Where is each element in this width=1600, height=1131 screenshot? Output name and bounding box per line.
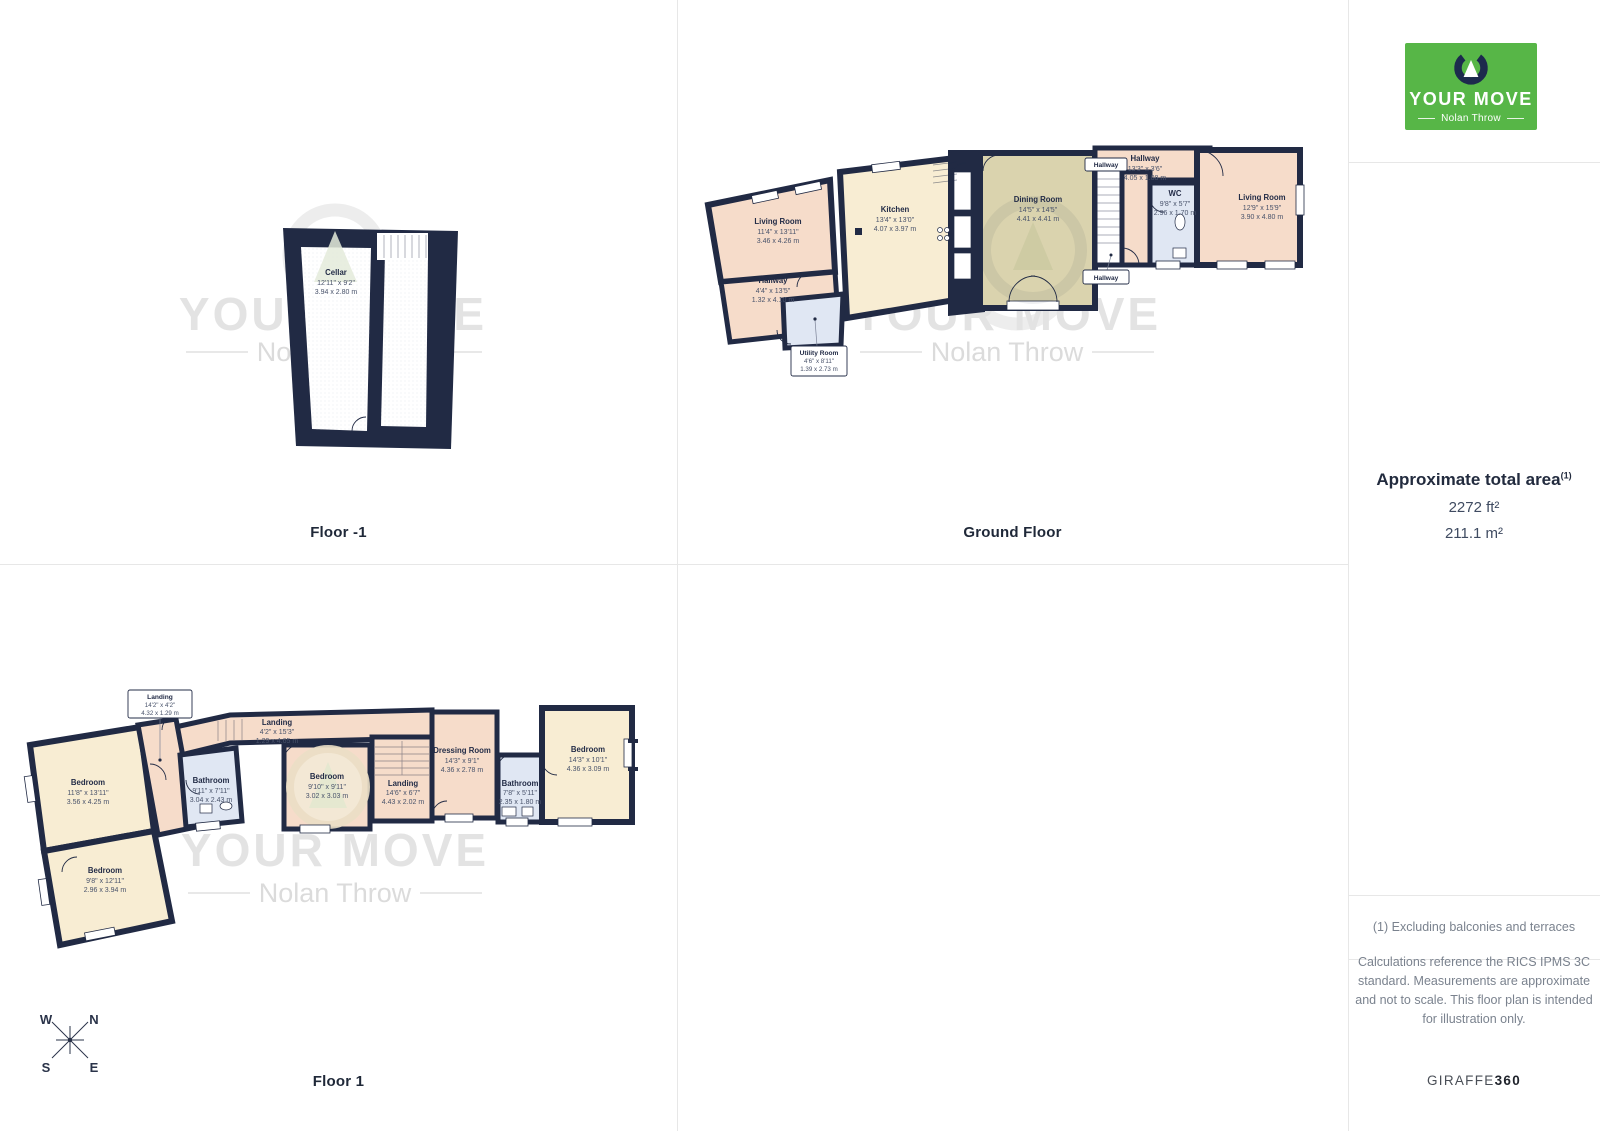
label-ft: 14'5" x 14'5" — [1019, 207, 1058, 214]
kitchen-unit — [954, 253, 971, 279]
room-label-living-left: Living Room 11'4" x 13'11" 3.46 x 4.26 m — [754, 217, 801, 245]
cellar-stairs — [377, 233, 428, 260]
compass-w: W — [40, 1012, 53, 1027]
floor-label-minus1: Floor -1 — [0, 524, 677, 541]
window — [1217, 261, 1247, 269]
wall-wing — [628, 767, 638, 771]
label-m: 2.96 x 1.70 m — [1154, 210, 1197, 217]
floorplan-floor-1: YOUR MOVE Nolan Throw — [0, 564, 677, 1131]
room-label-dining: Dining Room 14'5" x 14'5" 4.41 x 4.41 m — [1014, 195, 1063, 223]
logo-dash — [1507, 118, 1524, 119]
label-name: Landing — [388, 779, 419, 788]
label-m: 4.43 x 2.02 m — [382, 799, 425, 806]
sidebar-divider — [1348, 162, 1600, 163]
label-ft: 9'10" x 9'11" — [308, 784, 346, 791]
total-area-block: Approximate total area(1) 2272 ft² 211.1… — [1348, 470, 1600, 542]
room-label-living-right: Living Room 12'9" x 15'9" 3.90 x 4.80 m — [1238, 193, 1285, 221]
area-title: Approximate total area(1) — [1348, 470, 1600, 490]
area-sqft: 2272 ft² — [1348, 499, 1600, 516]
room-bedroom-right — [542, 708, 632, 822]
label-ft: 7'8" x 5'11" — [503, 790, 537, 797]
label-name: Bedroom — [571, 745, 605, 754]
room-label-landing-middle: Landing 14'6" x 6'7" 4.43 x 2.02 m — [382, 779, 425, 806]
window — [1296, 185, 1304, 215]
giraffe360-logo: GIRAFFE360 — [1348, 1073, 1600, 1088]
label-name: Hallway — [758, 276, 788, 285]
label-ft: 11'8" x 13'11" — [67, 790, 109, 797]
toilet — [200, 804, 212, 813]
area-footnote-marker: (1) — [1561, 470, 1572, 480]
label-ft: 12'9" x 15'9" — [1243, 205, 1282, 212]
label-ft: 14'3" x 9'1" — [445, 758, 480, 765]
label-ft: 11'4" x 13'11" — [757, 229, 799, 236]
cellar-plan — [283, 228, 458, 449]
window — [1156, 261, 1180, 269]
label-ft: 9'11" x 7'11" — [192, 788, 230, 795]
watermark-agency: Nolan Throw — [931, 337, 1084, 367]
label-m: 2.35 x 1.80 m — [499, 799, 542, 806]
label-m: 3.46 x 4.26 m — [757, 238, 800, 245]
label-name: Landing — [147, 694, 173, 701]
label-name: Dressing Room — [433, 746, 491, 755]
label-ft: 14'6" x 6'7" — [386, 790, 421, 797]
label-m: 3.56 x 4.25 m — [67, 799, 110, 806]
label-name: Living Room — [1238, 193, 1285, 202]
giraffe-360: 360 — [1495, 1073, 1521, 1088]
wc-cistern — [1173, 248, 1186, 258]
label-ft: 13'3" x 3'6" — [1128, 166, 1163, 173]
room-label-bedroom-bottom-left: Bedroom 9'8" x 12'11" 2.96 x 3.94 m — [84, 866, 127, 894]
label-name: Hallway — [1130, 154, 1160, 163]
floor-label-ground: Ground Floor — [677, 524, 1348, 541]
label-ft: 9'8" x 5'7" — [1160, 201, 1191, 208]
room-label-bedroom-middle: Bedroom 9'10" x 9'11" 3.02 x 3.03 m — [306, 772, 349, 800]
room-label-bedroom-top-left: Bedroom 11'8" x 13'11" 3.56 x 4.25 m — [67, 778, 110, 806]
label-ft: 4'2" x 15'3" — [260, 729, 295, 736]
label-ft: 4'4" x 13'5" — [756, 288, 791, 295]
sidebar-divider — [1348, 895, 1600, 896]
label-m: 2.96 x 3.94 m — [84, 887, 127, 894]
label-name: Bedroom — [71, 778, 105, 787]
label-name: WC — [1169, 189, 1182, 198]
room-label-bathroom-right: Bathroom 7'8" x 5'11" 2.35 x 1.80 m — [499, 779, 542, 806]
label-name: Hallway — [1094, 275, 1119, 282]
label-m: 4.32 x 1.29 m — [141, 710, 179, 717]
label-m: 4.36 x 3.09 m — [567, 766, 610, 773]
compass-n: N — [89, 1012, 98, 1027]
label-m: 4.07 x 3.97 m — [874, 226, 917, 233]
yourmove-logo-icon — [1448, 50, 1494, 88]
logo-dash — [1418, 118, 1435, 119]
area-sqm: 211.1 m² — [1348, 525, 1600, 542]
floor1-plan — [24, 708, 638, 945]
window — [300, 825, 330, 833]
label-m: 1.39 x 2.73 m — [800, 366, 838, 373]
watermark-brand: YOUR MOVE — [181, 824, 489, 876]
toilet — [522, 807, 533, 816]
label-ft: 14'2" x 4'2" — [145, 702, 176, 709]
agency-logo: YOUR MOVE Nolan Throw — [1405, 43, 1537, 130]
label-m: 4.41 x 4.41 m — [1017, 216, 1060, 223]
cellar-dims-m: 3.94 x 2.80 m — [315, 289, 358, 296]
basin — [502, 807, 516, 816]
hallway-box-label: Hallway — [1085, 158, 1127, 171]
window — [445, 814, 473, 822]
kitchen-unit — [954, 172, 971, 210]
window — [624, 739, 632, 767]
label-name: Living Room — [754, 217, 801, 226]
kitchen-unit — [954, 216, 971, 248]
room-label-landing-top: Landing 4'2" x 15'3" 1.29 x 4.65 m — [256, 718, 299, 745]
label-m: 1.32 x 4.10 m — [752, 297, 795, 304]
window — [506, 818, 528, 826]
disclaimer-text: Calculations reference the RICS IPMS 3C … — [1355, 953, 1593, 1029]
giraffe-text: GIRAFFE — [1427, 1073, 1495, 1088]
window — [558, 818, 592, 826]
label-name: Hallway — [1094, 162, 1119, 169]
label-name: Bedroom — [88, 866, 122, 875]
floorplan-floor-minus1: YOUR MOVE Nolan Throw Cellar 12'11" x 9'… — [0, 0, 677, 564]
label-ft: 14'3" x 10'1" — [569, 757, 608, 764]
watermark-floor1: YOUR MOVE Nolan Throw — [181, 824, 489, 908]
label-name: Bathroom — [502, 779, 539, 788]
label-ft: 13'4" x 13'0" — [876, 217, 915, 224]
label-name: Bathroom — [193, 776, 230, 785]
logo-agency-text: Nolan Throw — [1441, 113, 1501, 124]
stairwell — [1095, 163, 1122, 265]
label-m: 3.90 x 4.80 m — [1241, 214, 1284, 221]
logo-brand-text: YOUR MOVE — [1409, 90, 1533, 108]
room-label-bedroom-right: Bedroom 14'3" x 10'1" 4.36 x 3.09 m — [567, 745, 610, 773]
label-name: Utility Room — [800, 350, 839, 357]
label-m: 3.02 x 3.03 m — [306, 793, 349, 800]
label-ft: 9'8" x 12'11" — [86, 878, 124, 885]
kitchen-island — [855, 228, 862, 235]
label-name: Bedroom — [310, 772, 344, 781]
divider-vertical-left — [677, 0, 678, 1131]
compass-rose-icon: W N S E — [40, 1012, 99, 1075]
window — [1265, 261, 1295, 269]
label-m: 4.05 x 1.08 m — [1124, 175, 1167, 182]
wall-wing — [628, 739, 638, 743]
info-sidebar: YOUR MOVE Nolan Throw Approximate total … — [1348, 0, 1600, 1131]
label-m: 4.36 x 2.78 m — [441, 767, 484, 774]
floor-label-first: Floor 1 — [0, 1073, 677, 1090]
label-m: 1.29 x 4.65 m — [256, 738, 299, 745]
cellar-name: Cellar — [325, 268, 347, 277]
floorplan-ground-floor: YOUR MOVE Nolan Throw — [677, 0, 1348, 564]
label-name: Dining Room — [1014, 195, 1063, 204]
label-name: Landing — [262, 718, 293, 727]
divider-horizontal — [0, 564, 1348, 565]
label-m: 3.04 x 2.43 m — [190, 797, 233, 804]
room-label-bathroom-left: Bathroom 9'11" x 7'11" 3.04 x 2.43 m — [190, 776, 233, 804]
footnote-text: (1) Excluding balconies and terraces — [1348, 920, 1600, 934]
area-title-text: Approximate total area — [1376, 470, 1560, 489]
cellar-dims-ft: 12'11" x 9'2" — [317, 280, 355, 287]
room-hallway-corridor — [1122, 172, 1150, 265]
label-name: Kitchen — [881, 205, 910, 214]
watermark-agency: Nolan Throw — [259, 878, 412, 908]
label-ft: 4'6" x 8'11" — [804, 358, 834, 365]
